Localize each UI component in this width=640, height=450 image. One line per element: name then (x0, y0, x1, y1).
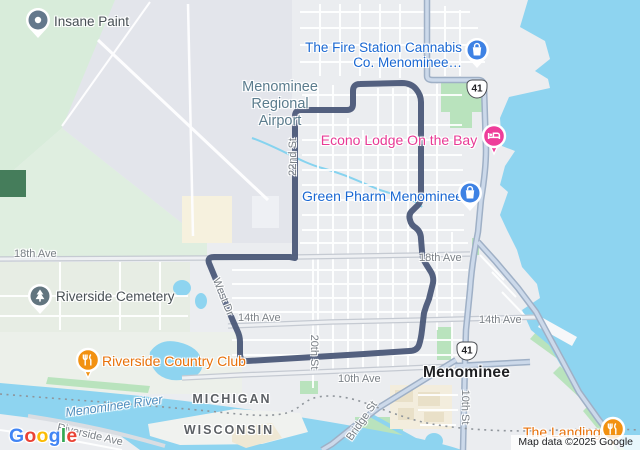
insane-paint-pin[interactable] (25, 7, 51, 44)
poi-label-insane-paint[interactable]: Insane Paint (54, 14, 129, 29)
state-label-wisconsin: WISCONSIN (184, 423, 274, 437)
shopping-bag-icon (457, 180, 483, 212)
google-logo[interactable]: Google (9, 425, 77, 448)
road-label-10th-ave: 10th Ave (338, 373, 381, 385)
state-label-michigan: MICHIGAN (192, 392, 271, 406)
poi-label-fire-station[interactable]: The Fire Station Cannabis Co. Menominee… (305, 41, 462, 70)
shopping-bag-icon (464, 37, 490, 69)
green-pharm-pin[interactable] (457, 180, 483, 217)
poi-label-riverside-country-club[interactable]: Riverside Country Club (102, 353, 246, 369)
poi-label-econo-lodge[interactable]: Econo Lodge On the Bay (321, 132, 477, 148)
airport-area-label: Menominee Regional Airport (242, 79, 318, 130)
fork-knife-icon (75, 347, 101, 380)
city-label-menominee: Menominee (423, 364, 510, 382)
road-label-10th-st: 10th St (459, 390, 471, 425)
road-label-14th-ave-east: 14th Ave (479, 314, 522, 326)
poi-label-riverside-cemetery[interactable]: Riverside Cemetery (56, 289, 175, 304)
poi-label-green-pharm[interactable]: Green Pharm Menominee (302, 188, 463, 204)
econo-lodge-pin[interactable] (481, 123, 507, 161)
road-label-18th-ave-west: 18th Ave (14, 248, 57, 260)
riverside-country-club-pin[interactable] (75, 347, 101, 385)
tree-icon (27, 283, 53, 315)
fire-station-pin[interactable] (464, 37, 490, 74)
bed-icon (481, 123, 507, 156)
road-label-14th-ave-west: 14th Ave (238, 312, 281, 324)
road-label-22nd-st: 22nd St (287, 138, 299, 176)
road-label-20th-st: 20th St (308, 335, 320, 370)
generic-pin-icon (25, 7, 51, 39)
map-canvas[interactable]: Menominee Regional Airport Insane Paint … (0, 0, 640, 450)
road-label-18th-ave-east: 18th Ave (419, 252, 462, 264)
riverside-cemetery-pin[interactable] (27, 283, 53, 320)
map-attribution: Map data ©2025 Google (511, 435, 640, 450)
